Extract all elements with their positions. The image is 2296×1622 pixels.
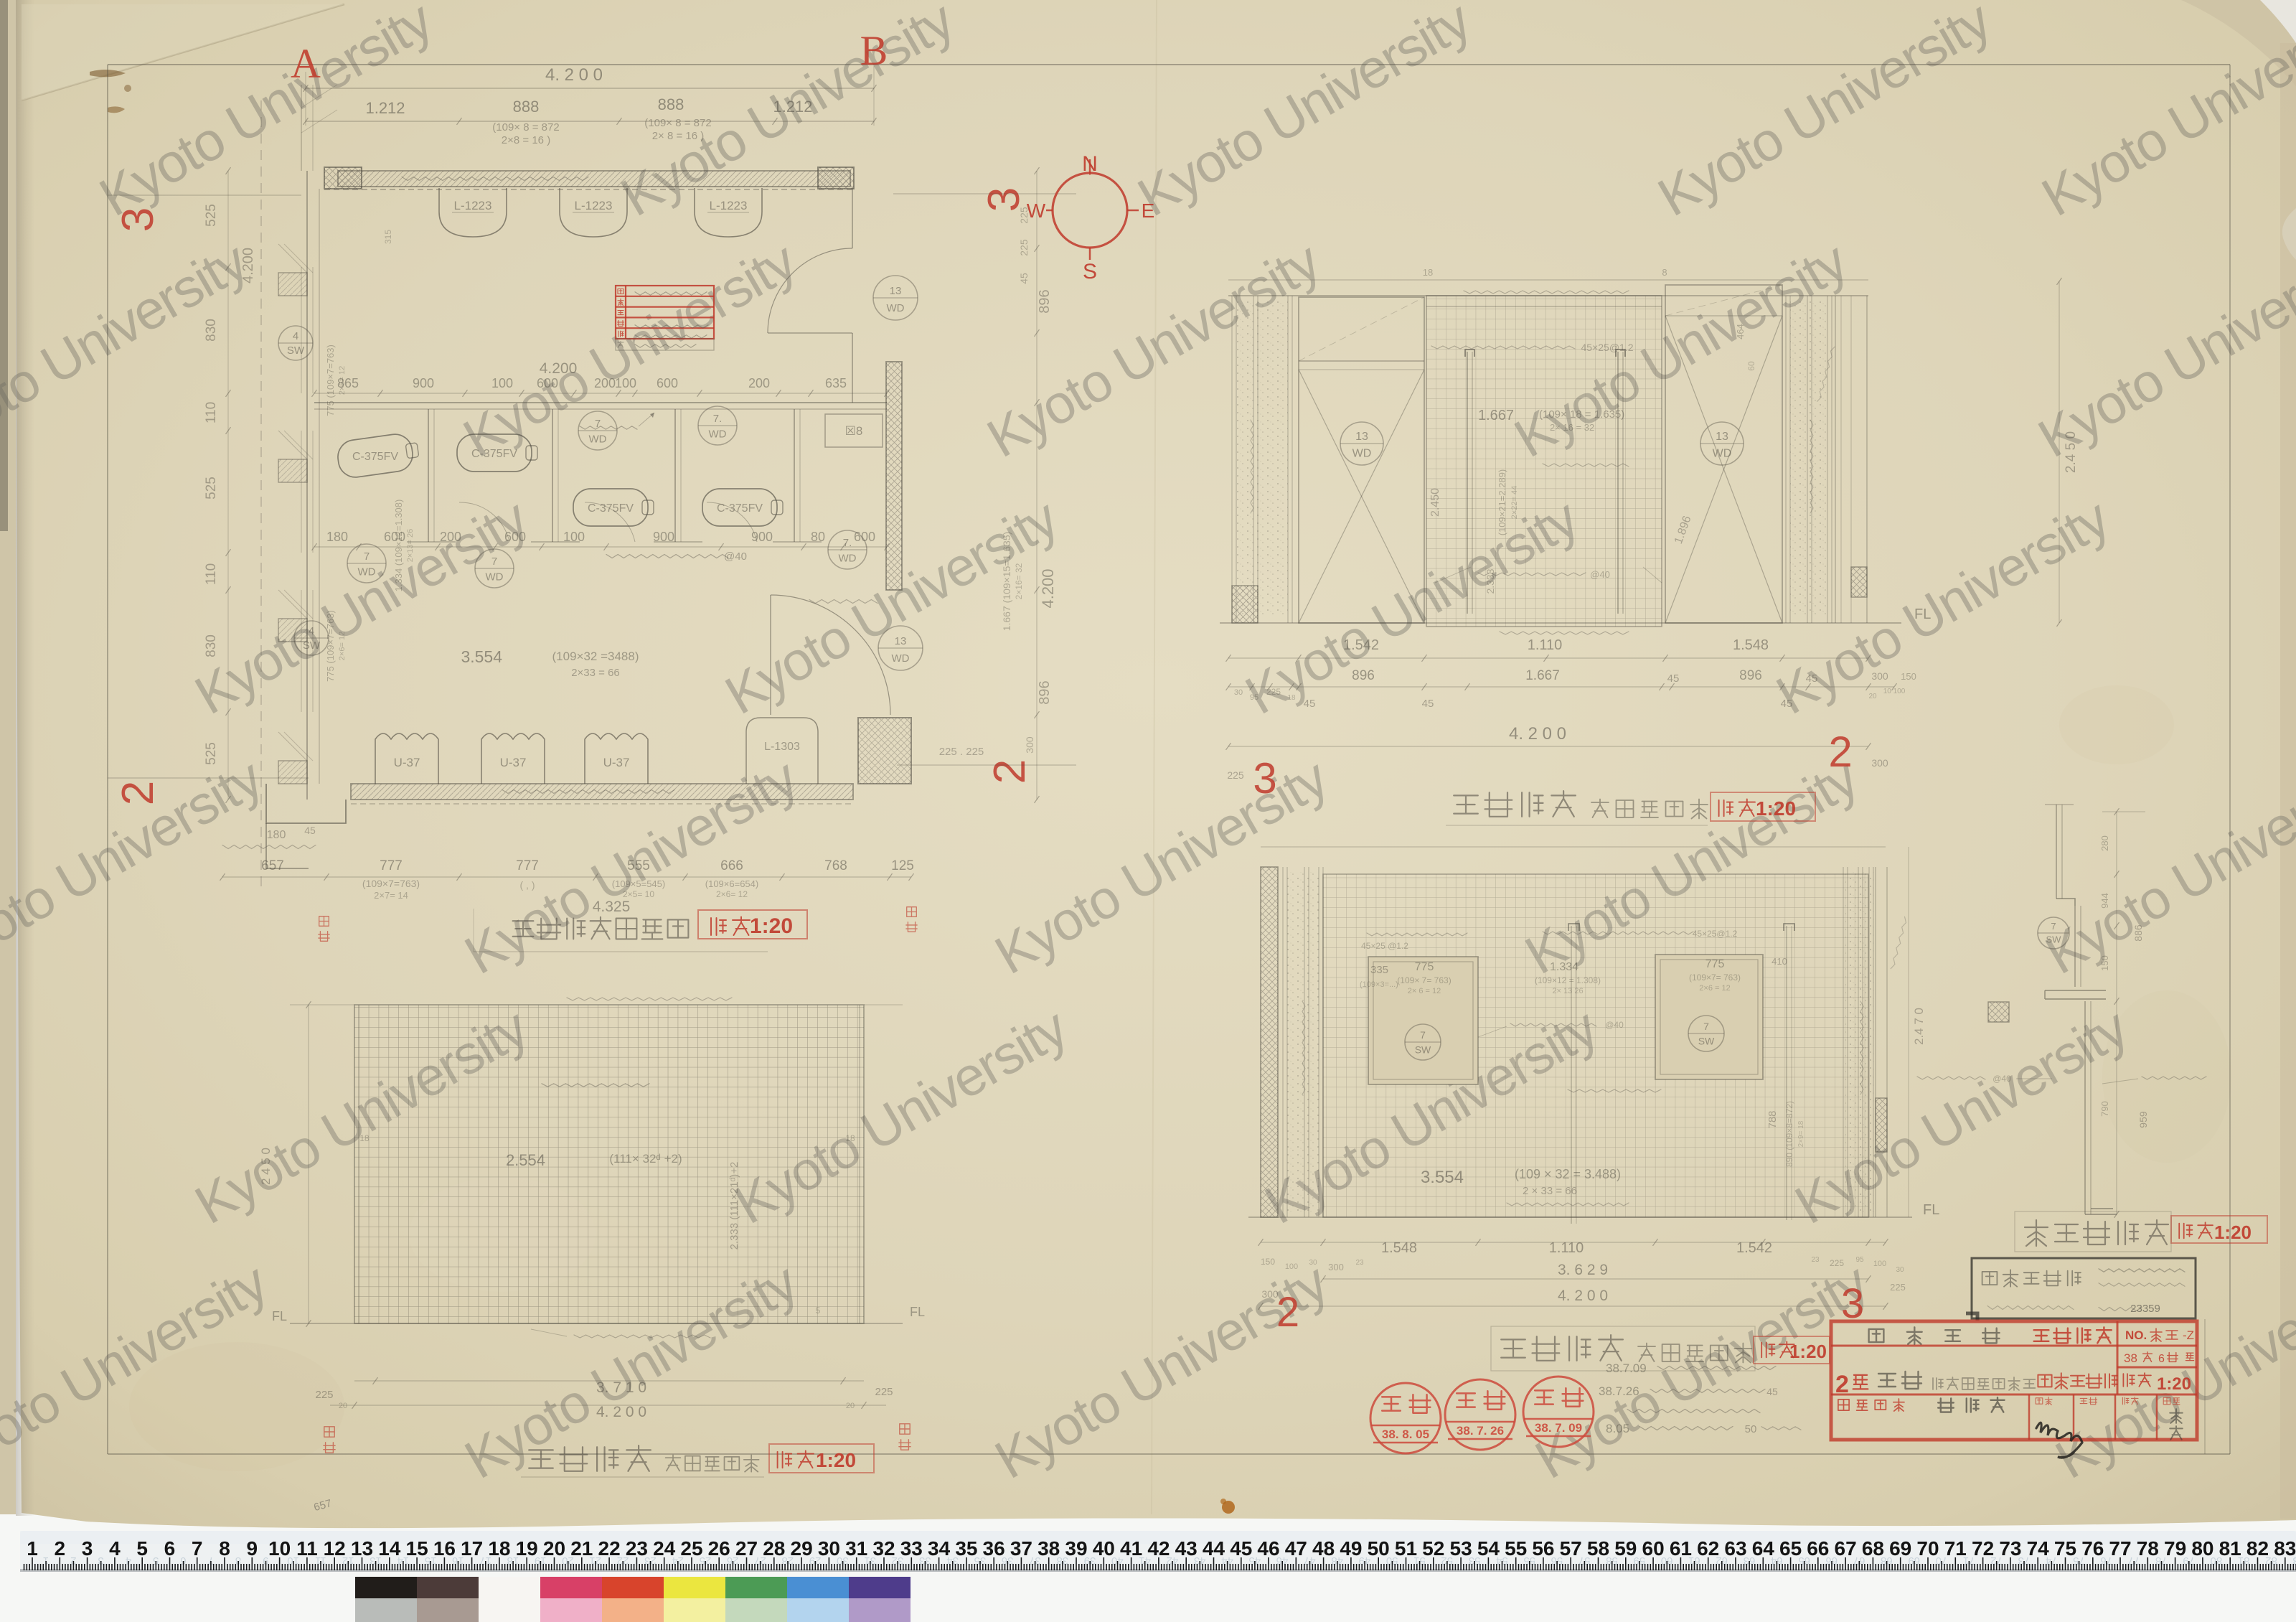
svg-text:(109×7=763): (109×7=763) — [362, 878, 420, 889]
svg-text:225: 225 — [1018, 239, 1030, 256]
svg-text:1.667: 1.667 — [1478, 408, 1514, 423]
svg-text:WD: WD — [1352, 448, 1372, 460]
svg-text:45: 45 — [1766, 1386, 1778, 1397]
svg-text:30: 30 — [1234, 688, 1243, 697]
svg-text:FL: FL — [1914, 606, 1931, 622]
svg-text:225: 225 — [315, 1389, 333, 1401]
svg-text:600: 600 — [384, 530, 405, 544]
svg-text:1:20: 1:20 — [1789, 1341, 1827, 1362]
svg-text:45: 45 — [1018, 273, 1030, 284]
svg-text:944: 944 — [2099, 893, 2110, 909]
svg-text:(109×21=2.289): (109×21=2.289) — [1497, 469, 1507, 536]
svg-text:3.554: 3.554 — [461, 647, 502, 666]
svg-text:2: 2 — [1828, 728, 1852, 776]
svg-text:525: 525 — [204, 477, 219, 500]
svg-text:WD: WD — [589, 433, 607, 446]
svg-text:900: 900 — [413, 376, 434, 390]
svg-text:18: 18 — [1287, 694, 1296, 702]
svg-text:888: 888 — [513, 98, 540, 116]
svg-text:@40: @40 — [1590, 569, 1610, 580]
svg-text:896: 896 — [1352, 668, 1375, 683]
svg-text:600: 600 — [854, 530, 875, 544]
svg-text:50: 50 — [1745, 1423, 1757, 1435]
svg-text:(109× 7= 763): (109× 7= 763) — [1397, 975, 1451, 985]
svg-text:WD: WD — [358, 566, 376, 578]
svg-text:C-375FV: C-375FV — [717, 502, 763, 515]
svg-text:225: 225 — [1227, 769, 1244, 781]
svg-text:600: 600 — [504, 530, 526, 544]
svg-text:( , ): ( , ) — [520, 879, 535, 891]
svg-text:4.200: 4.200 — [540, 360, 578, 377]
svg-text:896: 896 — [1037, 680, 1053, 704]
svg-text:1: 1 — [27, 1537, 38, 1560]
svg-text:790: 790 — [2099, 1101, 2110, 1117]
svg-text:900: 900 — [751, 530, 773, 544]
svg-text:8: 8 — [1662, 267, 1667, 278]
svg-text:7: 7 — [595, 418, 601, 430]
svg-text:1.542: 1.542 — [1736, 1240, 1772, 1256]
svg-text:45: 45 — [1422, 698, 1434, 710]
svg-text:60: 60 — [1746, 361, 1756, 371]
svg-text:(109×12 = 1.308): (109×12 = 1.308) — [1535, 975, 1601, 985]
svg-text:1.334: 1.334 — [1550, 961, 1578, 973]
svg-text:300: 300 — [1871, 757, 1888, 769]
svg-text:635: 635 — [825, 376, 847, 390]
svg-text:2× 13 26: 2× 13 26 — [1552, 987, 1583, 995]
svg-text:WD: WD — [839, 553, 857, 565]
svg-text:225 . 225: 225 . 225 — [939, 746, 984, 758]
svg-text:13: 13 — [890, 285, 902, 297]
svg-text:45×25 @1.2: 45×25 @1.2 — [1361, 941, 1408, 951]
svg-text:C-375FV: C-375FV — [352, 451, 398, 463]
svg-text:45×25@1.2: 45×25@1.2 — [1581, 342, 1634, 353]
svg-text:38.7.26: 38.7.26 — [1599, 1384, 1639, 1398]
svg-text:13: 13 — [1716, 431, 1728, 443]
svg-text:WD: WD — [887, 302, 905, 314]
svg-text:C-375FV: C-375FV — [471, 448, 517, 460]
svg-text:150: 150 — [2099, 955, 2110, 971]
svg-text:890 (109×8=872): 890 (109×8=872) — [1784, 1101, 1794, 1167]
svg-text:300: 300 — [1871, 670, 1888, 682]
svg-text:525: 525 — [204, 204, 219, 227]
svg-text:WD: WD — [892, 652, 910, 665]
svg-text:7: 7 — [2051, 921, 2056, 932]
svg-text:4. 2 0 0: 4. 2 0 0 — [545, 65, 603, 85]
svg-text:666: 666 — [720, 858, 743, 873]
svg-text:2: 2 — [1276, 1289, 1299, 1336]
svg-text:L-1223: L-1223 — [575, 199, 613, 212]
svg-text:SW: SW — [287, 344, 305, 357]
svg-text:7.: 7. — [713, 413, 723, 425]
svg-text:E: E — [1142, 200, 1155, 222]
svg-text:1.212: 1.212 — [773, 98, 812, 116]
svg-text:18: 18 — [845, 1133, 855, 1143]
svg-text:3: 3 — [1253, 754, 1276, 802]
svg-text:2×6 = 12: 2×6 = 12 — [1699, 984, 1730, 993]
svg-text:(111× 32ᵈ +2): (111× 32ᵈ +2) — [609, 1152, 682, 1166]
svg-text:200: 200 — [594, 376, 616, 390]
svg-text:2 4 5 0: 2 4 5 0 — [259, 1148, 273, 1185]
svg-text:9: 9 — [247, 1537, 258, 1560]
svg-text:2.450: 2.450 — [1429, 488, 1441, 517]
svg-text:38.7.09: 38.7.09 — [1606, 1361, 1647, 1375]
svg-text:2.4 7 0: 2.4 7 0 — [1912, 1008, 1926, 1045]
svg-text:SW: SW — [1698, 1036, 1715, 1047]
svg-text:600: 600 — [537, 376, 558, 390]
svg-text:L-1223: L-1223 — [710, 199, 748, 212]
svg-text:1.667 (109×15=1.635): 1.667 (109×15=1.635) — [1001, 532, 1012, 632]
svg-text:U-37: U-37 — [394, 756, 420, 769]
svg-text:896: 896 — [1037, 289, 1053, 313]
svg-text:886: 886 — [2132, 924, 2144, 942]
svg-text:464: 464 — [1735, 324, 1746, 339]
svg-text:95: 95 — [1250, 693, 1258, 702]
svg-text:830: 830 — [204, 634, 219, 657]
svg-text:1.212: 1.212 — [365, 99, 405, 117]
svg-text:2: 2 — [113, 781, 163, 805]
svg-text:100: 100 — [615, 376, 636, 390]
svg-text:1.110: 1.110 — [1528, 637, 1563, 653]
svg-text:2× 16 = 32: 2× 16 = 32 — [1550, 422, 1594, 433]
svg-text:45×25@1.2: 45×25@1.2 — [1693, 929, 1738, 939]
svg-text:2.4 5 0: 2.4 5 0 — [2064, 431, 2079, 473]
svg-text:(109×7= 763): (109×7= 763) — [1689, 972, 1741, 983]
svg-text:45: 45 — [1667, 672, 1680, 685]
svg-text:C-375FV: C-375FV — [588, 502, 634, 515]
svg-text:4: 4 — [309, 625, 314, 637]
svg-text:18: 18 — [359, 1133, 370, 1143]
svg-text:80: 80 — [811, 530, 825, 544]
svg-text:WD: WD — [486, 571, 504, 583]
svg-text:3: 3 — [113, 207, 163, 232]
svg-text:225: 225 — [1830, 1258, 1844, 1268]
svg-text:657: 657 — [261, 858, 284, 873]
svg-text:45: 45 — [1781, 698, 1793, 710]
svg-text:38. 7. 09: 38. 7. 09 — [1535, 1421, 1582, 1435]
svg-text:2×6= 12: 2×6= 12 — [338, 632, 347, 660]
svg-text:1:20: 1:20 — [2157, 1374, 2191, 1394]
svg-text:S: S — [1083, 260, 1097, 283]
svg-text:SW: SW — [303, 639, 321, 652]
svg-text:3: 3 — [82, 1537, 93, 1560]
svg-text:13: 13 — [895, 635, 907, 647]
svg-text:7: 7 — [364, 550, 370, 563]
svg-text:150: 150 — [1901, 671, 1916, 682]
svg-text:@40: @40 — [1992, 1074, 2011, 1084]
svg-text:23359: 23359 — [2130, 1303, 2160, 1315]
svg-text:1.667: 1.667 — [1525, 668, 1560, 683]
svg-text:2×8 = 16 ): 2×8 = 16 ) — [502, 134, 550, 146]
svg-text:@40: @40 — [1605, 1020, 1624, 1030]
svg-text:1.548: 1.548 — [1381, 1240, 1417, 1256]
svg-text:2×22= 44: 2×22= 44 — [1510, 486, 1519, 520]
svg-text:WD: WD — [709, 428, 727, 441]
svg-text:18: 18 — [1423, 267, 1433, 278]
svg-text:200: 200 — [440, 530, 461, 544]
svg-text:225: 225 — [875, 1386, 893, 1398]
svg-text:4: 4 — [109, 1537, 121, 1560]
svg-text:(109×6=654): (109×6=654) — [705, 878, 758, 889]
svg-text:☒8: ☒8 — [845, 424, 863, 438]
svg-text:100: 100 — [491, 376, 513, 390]
svg-text:2: 2 — [985, 759, 1035, 784]
svg-text:2×33 = 66: 2×33 = 66 — [571, 667, 620, 679]
svg-text:1:20: 1:20 — [2214, 1222, 2252, 1243]
svg-text:8.05: 8.05 — [1606, 1422, 1629, 1435]
svg-text:10 100: 10 100 — [1883, 688, 1906, 695]
svg-text:@40: @40 — [724, 550, 747, 563]
svg-text:1.334 (109×12=1.308): 1.334 (109×12=1.308) — [393, 500, 404, 592]
svg-text:2: 2 — [1835, 1371, 1849, 1398]
svg-text:5: 5 — [816, 1305, 821, 1316]
svg-text:2: 2 — [55, 1537, 66, 1560]
svg-text:NO.: NO. — [2125, 1328, 2147, 1342]
svg-text:SW: SW — [1415, 1044, 1431, 1056]
svg-text:3. 7 1 0: 3. 7 1 0 — [596, 1379, 646, 1396]
svg-text:200: 200 — [748, 376, 770, 390]
svg-text:125: 125 — [891, 858, 914, 873]
svg-text:959: 959 — [2137, 1111, 2149, 1128]
svg-text:110: 110 — [204, 402, 219, 423]
svg-text:410: 410 — [1772, 956, 1787, 967]
svg-text:300: 300 — [1328, 1262, 1344, 1272]
svg-text:2×5= 10: 2×5= 10 — [623, 889, 654, 899]
svg-text:555: 555 — [627, 858, 650, 873]
svg-text:W: W — [1027, 200, 1046, 222]
svg-text:3. 6 2 9: 3. 6 2 9 — [1558, 1262, 1608, 1278]
svg-text:4.200: 4.200 — [1039, 568, 1057, 608]
svg-text:2×9= 18: 2×9= 18 — [1797, 1120, 1805, 1147]
svg-text:(109× 8 = 872: (109× 8 = 872 — [644, 117, 711, 129]
svg-text:(109× 8 = 872: (109× 8 = 872 — [492, 121, 559, 133]
svg-text:U-37: U-37 — [603, 756, 630, 769]
svg-text:2×16= 32: 2×16= 32 — [1014, 563, 1024, 599]
svg-text:FL: FL — [910, 1305, 925, 1319]
svg-text:45: 45 — [304, 825, 316, 836]
svg-text:U-37: U-37 — [500, 756, 527, 769]
svg-text:280: 280 — [2099, 835, 2110, 851]
svg-text:2×7= 14: 2×7= 14 — [374, 890, 408, 901]
svg-text:5: 5 — [136, 1537, 148, 1560]
svg-text:2×13= 26: 2×13= 26 — [406, 529, 415, 563]
svg-text:775 (109×7=763): 775 (109×7=763) — [325, 344, 336, 416]
svg-text:(109×32 =3488): (109×32 =3488) — [552, 650, 639, 663]
svg-text:775: 775 — [1415, 961, 1434, 973]
svg-text:150: 150 — [1261, 1257, 1275, 1267]
svg-text:888: 888 — [658, 95, 684, 113]
svg-text:FL: FL — [272, 1309, 287, 1323]
svg-text:4. 2 0 0: 4. 2 0 0 — [1558, 1288, 1608, 1304]
svg-text:777: 777 — [516, 858, 539, 873]
svg-text:30: 30 — [1309, 1259, 1317, 1267]
svg-text:335: 335 — [1370, 964, 1388, 976]
svg-text:600: 600 — [657, 376, 678, 390]
svg-text:23: 23 — [1811, 1256, 1820, 1264]
svg-text:20: 20 — [846, 1402, 855, 1410]
svg-text:7: 7 — [491, 555, 497, 568]
svg-text:775: 775 — [1705, 958, 1725, 970]
svg-text:100: 100 — [1873, 1260, 1886, 1268]
svg-text:38. 8. 05: 38. 8. 05 — [1382, 1428, 1429, 1441]
svg-text:7: 7 — [192, 1537, 203, 1560]
svg-text:1:20: 1:20 — [750, 914, 793, 938]
svg-text:4.325: 4.325 — [593, 899, 631, 915]
svg-text:788: 788 — [1766, 1110, 1779, 1128]
svg-text:4: 4 — [293, 330, 298, 342]
svg-text:38. 7. 26: 38. 7. 26 — [1457, 1424, 1504, 1438]
svg-text:525: 525 — [204, 742, 219, 765]
svg-text:-Z: -Z — [2183, 1328, 2194, 1342]
svg-text:2 × 33 = 66: 2 × 33 = 66 — [1523, 1185, 1577, 1197]
svg-text:23: 23 — [1355, 1259, 1364, 1267]
svg-text:2× 6 = 12: 2× 6 = 12 — [1408, 987, 1441, 995]
svg-text:WD: WD — [1713, 448, 1732, 460]
svg-text:830: 830 — [204, 319, 219, 342]
svg-text:(109×3=...): (109×3=...) — [1360, 980, 1398, 989]
svg-text:6: 6 — [164, 1537, 176, 1560]
svg-text:(109×5=545): (109×5=545) — [612, 878, 665, 889]
svg-text:L-1303: L-1303 — [764, 741, 800, 753]
svg-text:100: 100 — [563, 530, 585, 544]
svg-text:95: 95 — [1855, 1256, 1864, 1264]
svg-text:2.333 (111×21ᵈ)+2: 2.333 (111×21ᵈ)+2 — [728, 1162, 740, 1250]
svg-text:FL: FL — [1923, 1202, 1939, 1218]
svg-text:(109× 18 = 1.635): (109× 18 = 1.635) — [1539, 408, 1624, 421]
svg-text:4.200: 4.200 — [240, 248, 256, 283]
svg-text:300: 300 — [1024, 736, 1035, 754]
svg-text:7: 7 — [1703, 1021, 1709, 1032]
svg-text:865: 865 — [337, 376, 359, 390]
svg-text:20: 20 — [339, 1402, 347, 1410]
svg-text:3.554: 3.554 — [1421, 1168, 1464, 1187]
svg-text:2× 8 = 16 ): 2× 8 = 16 ) — [652, 130, 705, 142]
svg-text:2.554: 2.554 — [506, 1151, 545, 1169]
svg-text:225: 225 — [1890, 1282, 1906, 1293]
svg-text:1.110: 1.110 — [1549, 1240, 1584, 1256]
svg-text:7: 7 — [1420, 1029, 1426, 1041]
svg-text:100: 100 — [1285, 1262, 1298, 1271]
svg-text:SW: SW — [2046, 934, 2062, 945]
svg-text:1.548: 1.548 — [1733, 637, 1769, 653]
svg-text:38: 38 — [2124, 1351, 2137, 1365]
svg-text:6: 6 — [2158, 1353, 2165, 1365]
svg-text:4. 2 0 0: 4. 2 0 0 — [1509, 724, 1566, 744]
svg-text:2×6= 12: 2×6= 12 — [716, 889, 748, 899]
svg-text:900: 900 — [653, 530, 674, 544]
svg-text:L-1223: L-1223 — [454, 199, 492, 212]
svg-text:1:20: 1:20 — [816, 1449, 856, 1471]
svg-text:(109 × 32 = 3.488): (109 × 32 = 3.488) — [1515, 1167, 1621, 1181]
svg-text:777: 777 — [380, 858, 403, 873]
svg-text:315: 315 — [383, 230, 393, 244]
svg-text:13: 13 — [1355, 431, 1368, 443]
svg-text:180: 180 — [267, 829, 286, 841]
svg-text:30: 30 — [1896, 1266, 1904, 1274]
svg-text:110: 110 — [204, 563, 219, 585]
svg-text:45: 45 — [1806, 672, 1818, 685]
svg-text:8: 8 — [219, 1537, 230, 1560]
svg-text:1:20: 1:20 — [1756, 797, 1796, 820]
svg-text:768: 768 — [824, 858, 847, 873]
svg-text:20: 20 — [1868, 693, 1877, 700]
svg-text:225: 225 — [1266, 687, 1281, 697]
svg-text:180: 180 — [326, 530, 348, 544]
svg-text:1.542: 1.542 — [1343, 637, 1379, 653]
svg-text:45: 45 — [1304, 698, 1316, 710]
svg-text:896: 896 — [1739, 668, 1762, 683]
svg-text:4. 2 0 0: 4. 2 0 0 — [596, 1404, 646, 1420]
